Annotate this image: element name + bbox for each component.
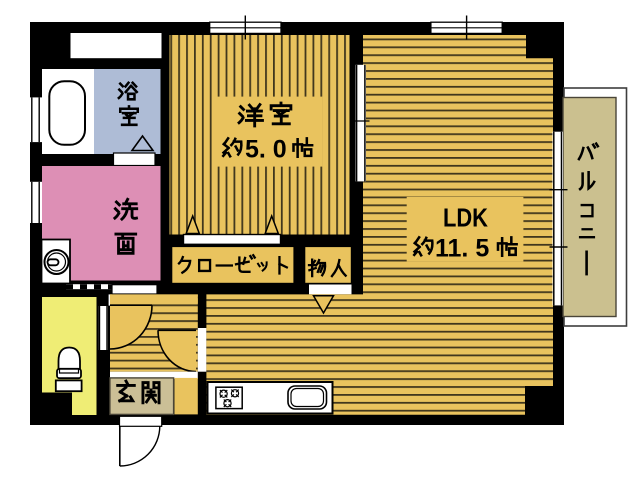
- svg-text:LDK: LDK: [443, 203, 488, 233]
- svg-text:5. 0: 5. 0: [245, 136, 287, 164]
- svg-text:11. 5: 11. 5: [435, 235, 489, 263]
